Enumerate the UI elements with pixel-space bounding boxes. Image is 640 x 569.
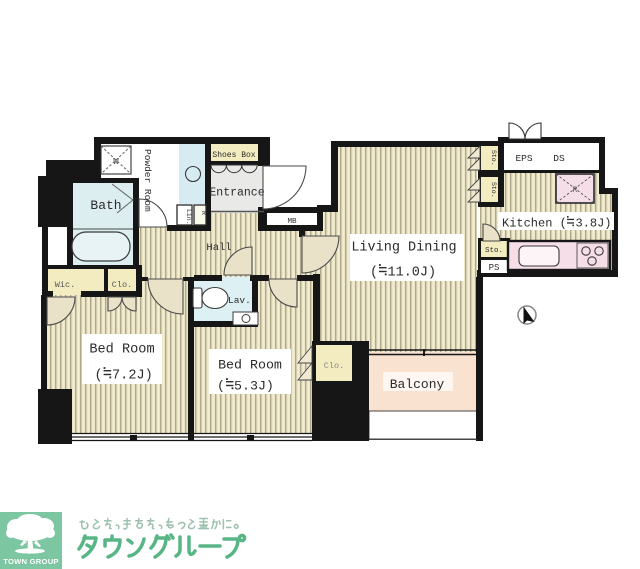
svg-text:PS: PS	[489, 263, 500, 273]
svg-text:Bed Room: Bed Room	[218, 358, 282, 373]
svg-text:MB: MB	[287, 218, 297, 226]
svg-text:Sto.: Sto.	[490, 182, 497, 198]
svg-text:R: R	[572, 185, 577, 195]
svg-text:Lav.: Lav.	[228, 295, 251, 306]
svg-text:Living Dining: Living Dining	[351, 241, 456, 256]
svg-text:TOWN GROUP: TOWN GROUP	[3, 557, 59, 566]
svg-text:7.2J): 7.2J)	[112, 369, 153, 384]
svg-text:11.0J): 11.0J)	[388, 266, 437, 281]
svg-text:(: (	[95, 369, 103, 384]
svg-text:Lin.: Lin.	[185, 209, 192, 225]
svg-text:Bed Room: Bed Room	[89, 343, 154, 358]
svg-text:3.8J): 3.8J)	[576, 217, 612, 231]
svg-text:Sto.: Sto.	[485, 247, 503, 255]
svg-text:Balcony: Balcony	[390, 377, 445, 392]
svg-text:5.3J): 5.3J)	[234, 379, 274, 394]
svg-text:(: (	[217, 379, 225, 394]
svg-text:Sto.: Sto.	[490, 150, 497, 166]
svg-text:(: (	[370, 266, 378, 281]
svg-text:Bath: Bath	[90, 198, 121, 213]
svg-text:Clo.: Clo.	[324, 361, 344, 371]
svg-text:R: R	[200, 211, 207, 215]
svg-text:DS: DS	[553, 153, 565, 164]
svg-text:Hall: Hall	[206, 242, 231, 254]
svg-text:Shoes Box: Shoes Box	[212, 151, 255, 160]
svg-text:Kitchen (: Kitchen (	[502, 217, 567, 231]
svg-text:W: W	[113, 157, 119, 167]
svg-text:EPS: EPS	[515, 153, 532, 164]
svg-text:Clo.: Clo.	[112, 280, 132, 290]
svg-text:Entrance: Entrance	[209, 187, 264, 200]
svg-text:Wic.: Wic.	[55, 280, 75, 290]
svg-text:Powder Room: Powder Room	[142, 149, 153, 212]
